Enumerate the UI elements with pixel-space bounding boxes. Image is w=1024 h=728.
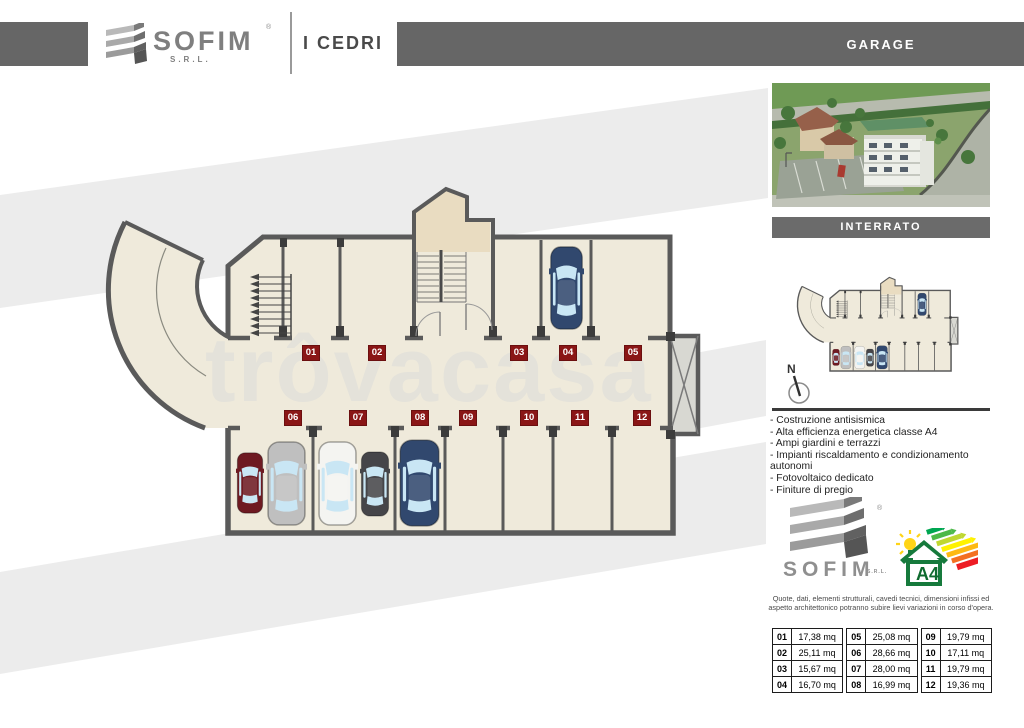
parking-badge: 10 (520, 410, 538, 426)
parking-badge: 04 (559, 345, 577, 361)
parking-badge: 05 (624, 345, 642, 361)
parking-badge: 06 (284, 410, 302, 426)
parking-badge: 07 (349, 410, 367, 426)
page: GARAGE SOFIM S.R.L. ® I CEDRI (0, 0, 1024, 728)
parking-badge: 03 (510, 345, 528, 361)
parking-badge: 08 (411, 410, 429, 426)
parking-badge: 11 (571, 410, 589, 426)
parking-badge: 01 (302, 345, 320, 361)
building-photo (772, 83, 990, 207)
parking-badge: 02 (368, 345, 386, 361)
mini-floor-plan (797, 277, 957, 371)
parking-badge: 09 (459, 410, 477, 426)
parking-badge: 12 (633, 410, 651, 426)
